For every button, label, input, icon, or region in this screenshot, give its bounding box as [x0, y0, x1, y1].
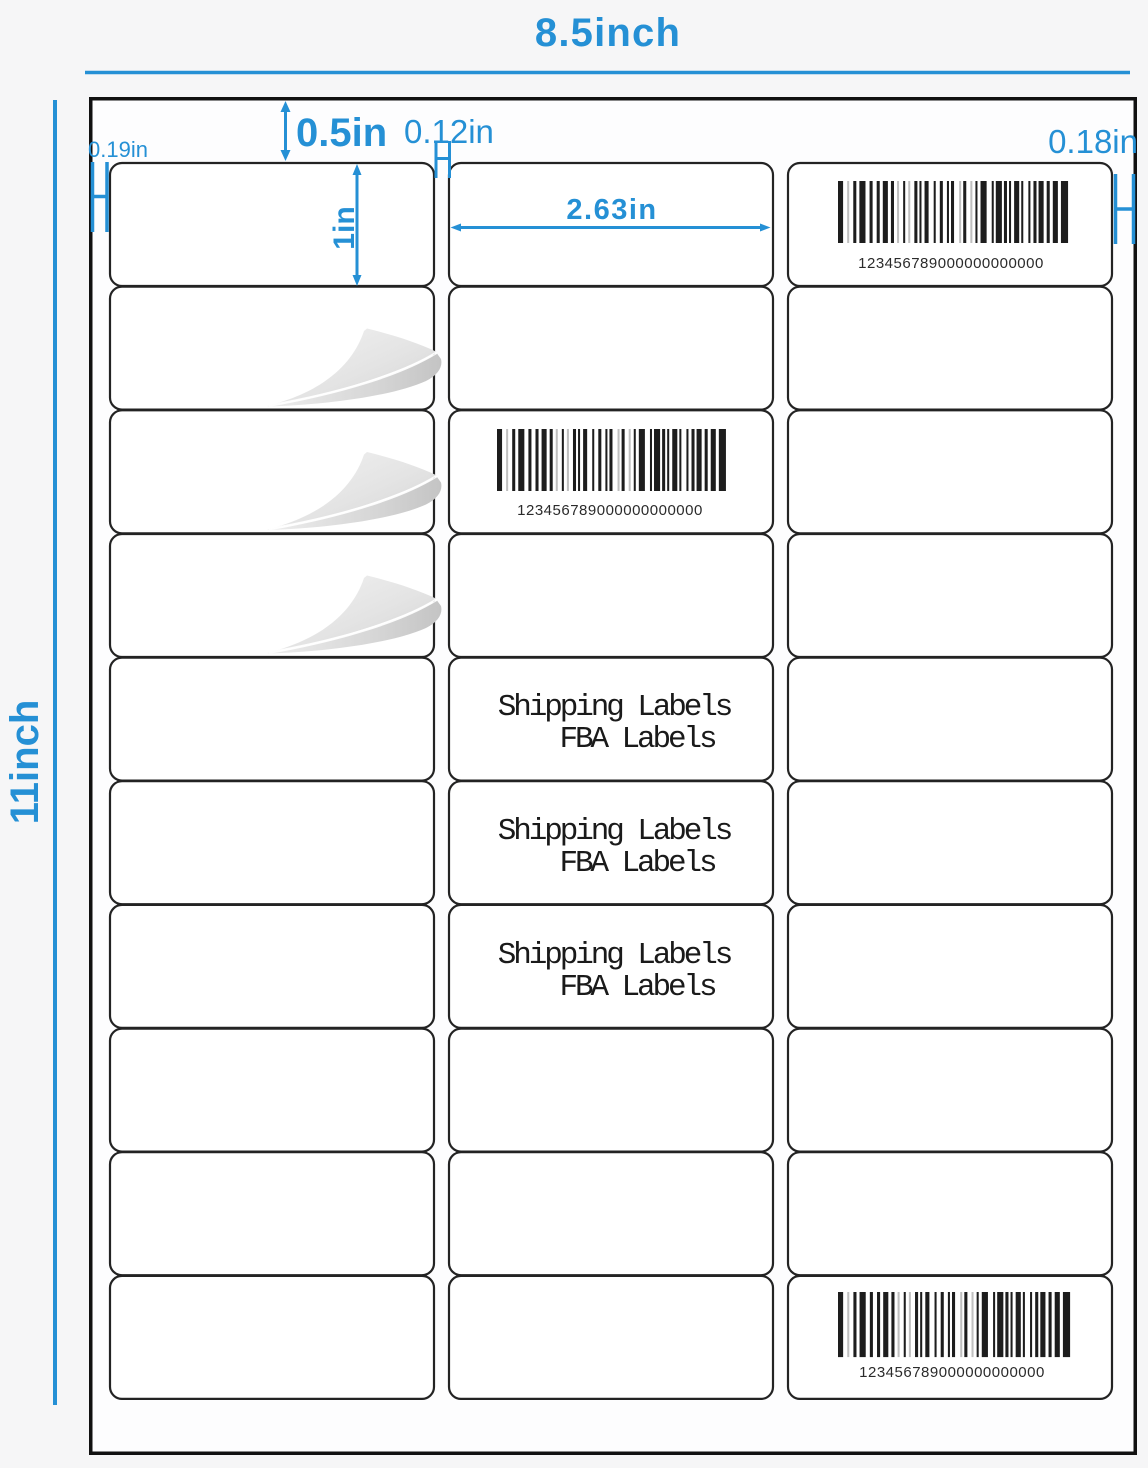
svg-text:FBA Labels: FBA Labels [559, 970, 716, 1005]
svg-text:8.5inch: 8.5inch [535, 11, 681, 55]
svg-text:Shipping Labels: Shipping Labels [498, 814, 732, 849]
svg-text:0.18in: 0.18in [1048, 123, 1138, 160]
svg-text:0.19in: 0.19in [88, 137, 148, 162]
svg-text:123456789000000000000: 123456789000000000000 [859, 1364, 1045, 1381]
svg-text:11inch: 11inch [3, 700, 47, 825]
svg-text:FBA Labels: FBA Labels [559, 722, 716, 757]
svg-text:Shipping Labels: Shipping Labels [498, 938, 732, 973]
svg-text:123456789000000000000: 123456789000000000000 [858, 255, 1044, 272]
svg-text:Shipping Labels: Shipping Labels [498, 690, 732, 725]
svg-text:2.63in: 2.63in [566, 194, 657, 226]
svg-text:0.5in: 0.5in [296, 111, 387, 155]
svg-text:123456789000000000000: 123456789000000000000 [517, 502, 703, 519]
svg-text:FBA Labels: FBA Labels [559, 846, 716, 881]
svg-text:1in: 1in [328, 206, 361, 249]
